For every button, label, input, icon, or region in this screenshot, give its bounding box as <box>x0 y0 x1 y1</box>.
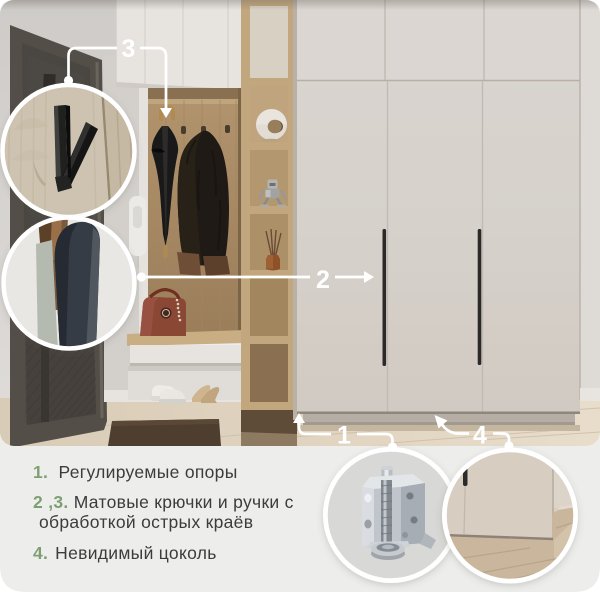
svg-text:3: 3 <box>122 35 136 63</box>
svg-text:2: 2 <box>316 266 330 294</box>
